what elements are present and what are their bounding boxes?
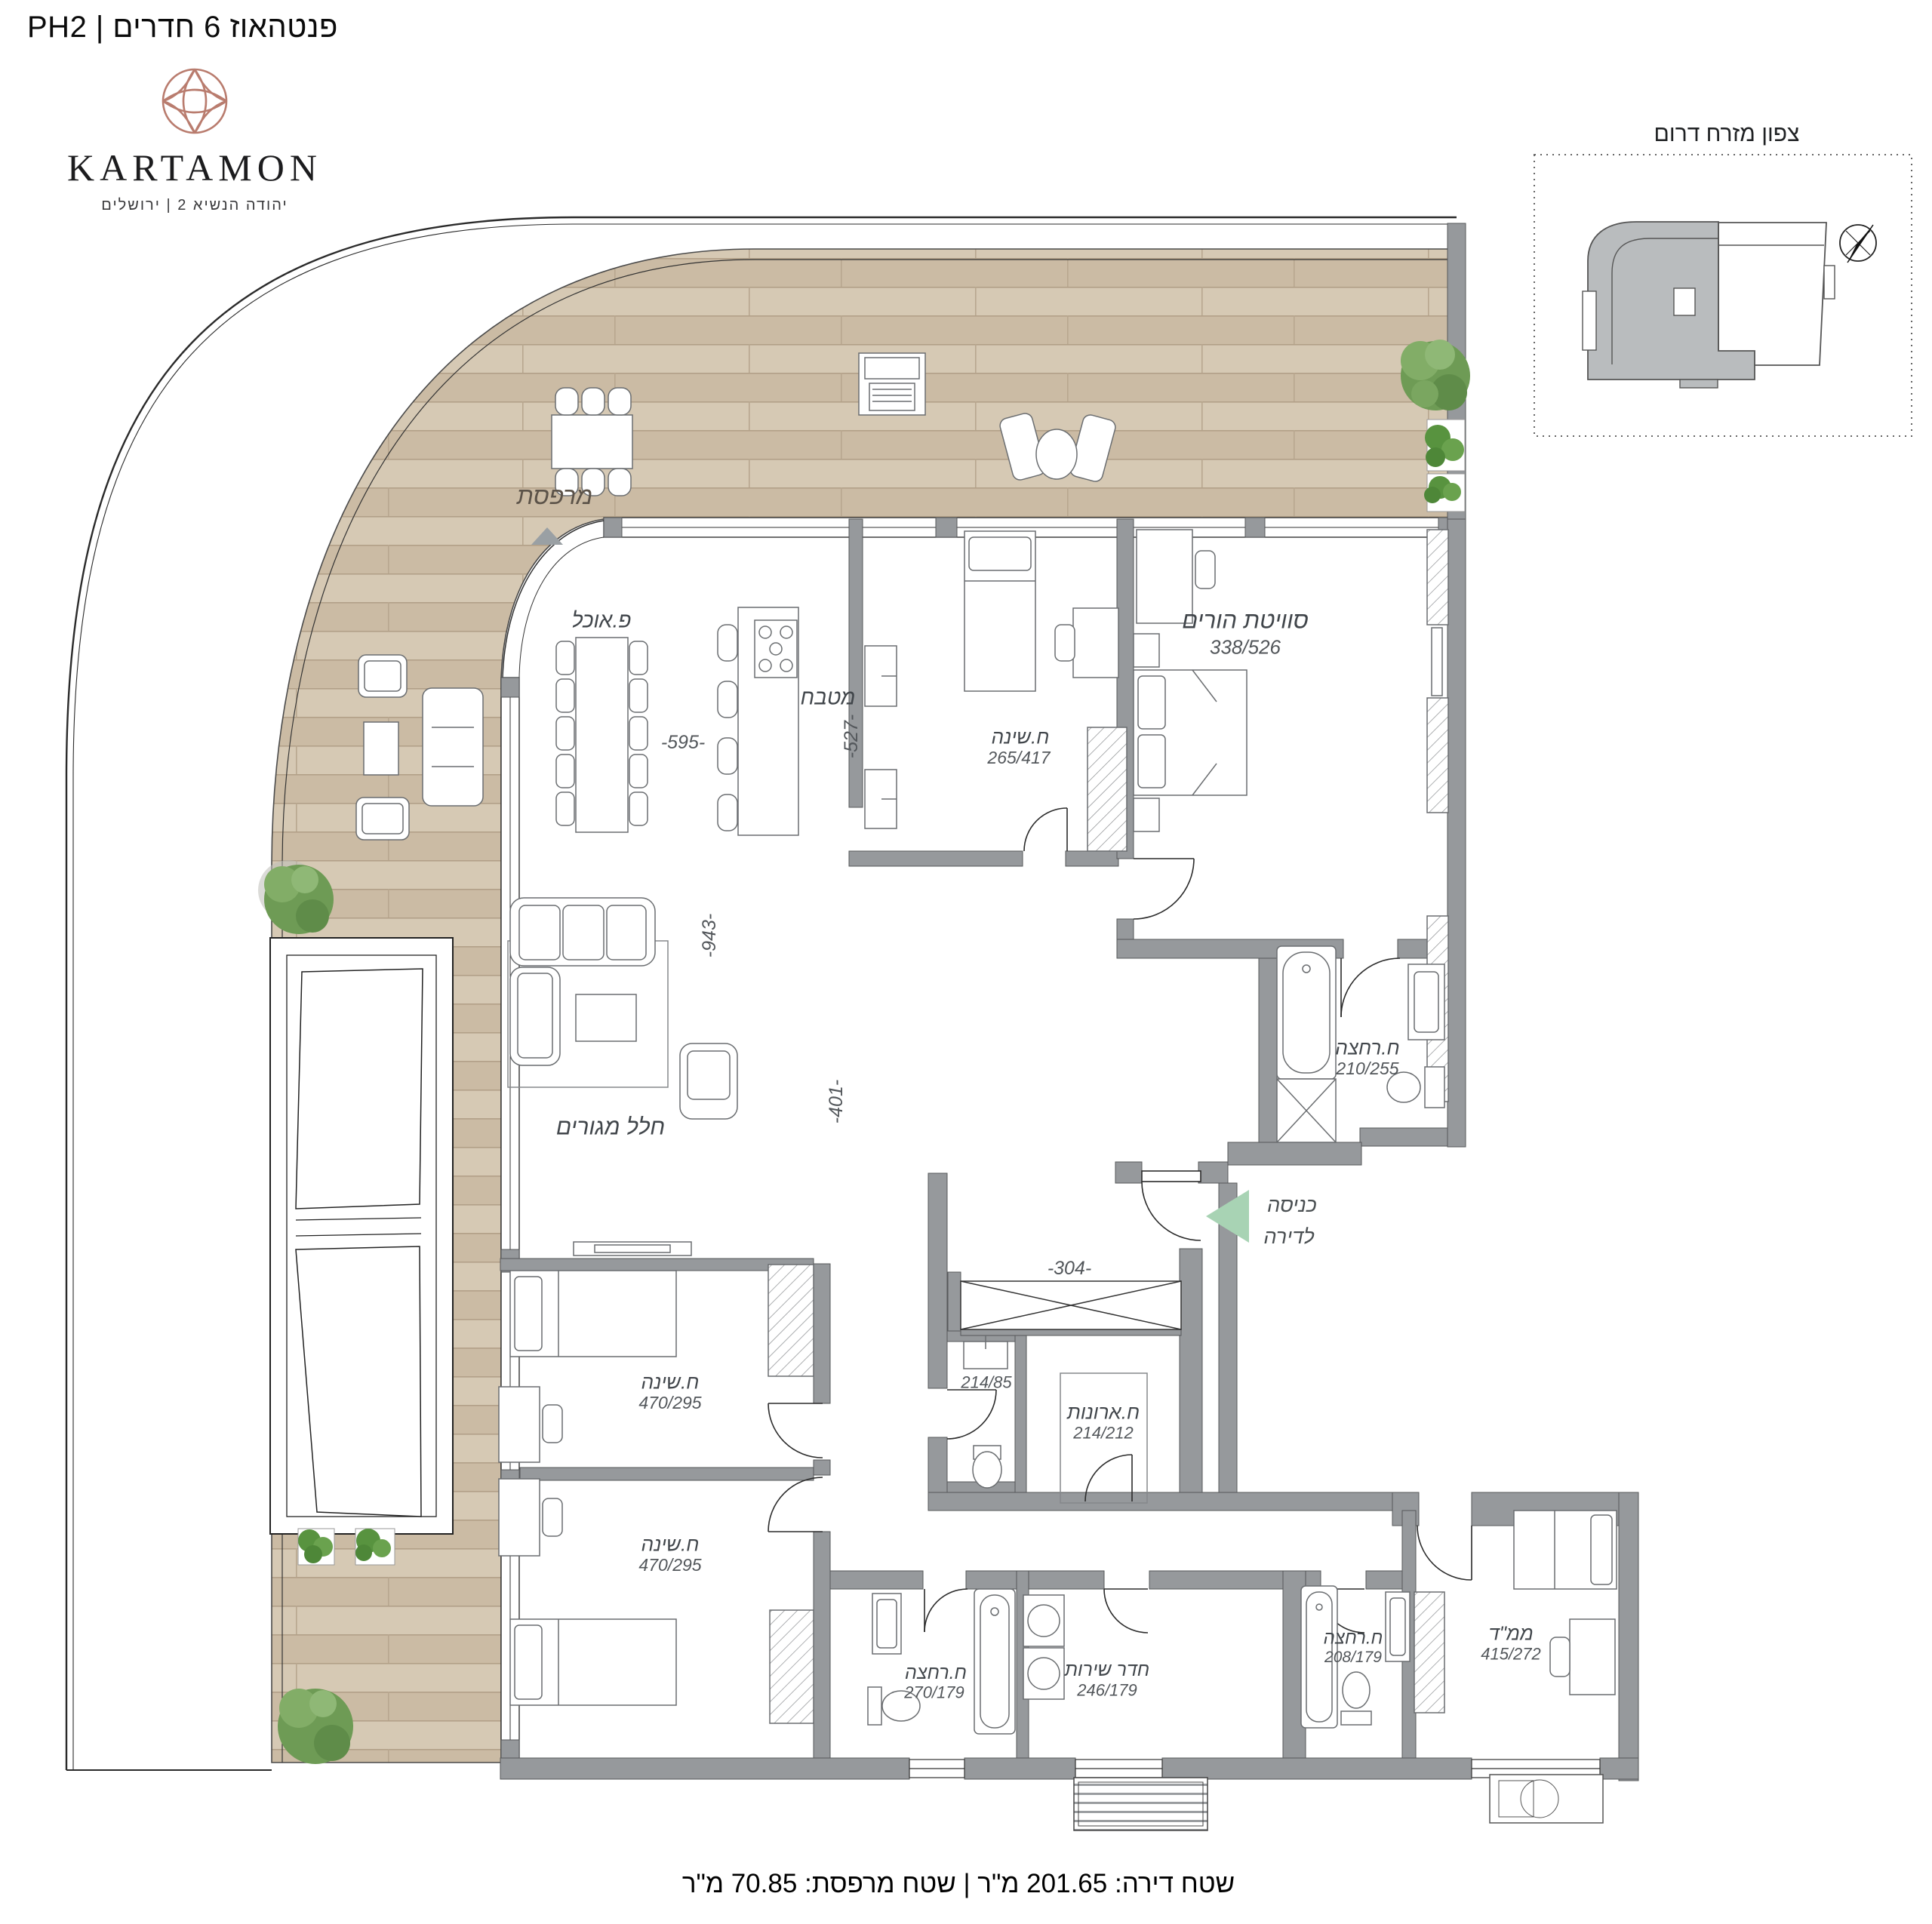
label-entry-2: לדירה — [1263, 1226, 1314, 1247]
label-bedroom2: ח.שינה — [641, 1372, 700, 1392]
label-kitchen: מטבח — [801, 686, 856, 708]
floorplan-drawing — [0, 0, 1932, 1924]
label-suite-bath-dims: 210/255 — [1336, 1059, 1398, 1077]
label-service-dims: 246/179 — [1077, 1681, 1137, 1698]
planters-right — [1424, 420, 1465, 512]
label-wc-dims: 214/85 — [961, 1373, 1011, 1391]
label-service: חדר שירות — [1065, 1660, 1149, 1680]
dim-401: -401- — [826, 1080, 846, 1123]
compass-icon — [1840, 225, 1876, 263]
label-bedroom1-dims: 265/417 — [987, 748, 1050, 767]
label-bath3: ח.רחצה — [1324, 1628, 1383, 1647]
kitchen-island — [718, 607, 798, 835]
ac-platform — [1074, 1775, 1603, 1830]
label-closet-room-dims: 214/212 — [1073, 1424, 1134, 1441]
label-bath2-dims: 270/179 — [904, 1683, 964, 1701]
floorplan-page: פנטהאוז 6 חדרים | PH2 KARTAMON יהודה הנש… — [0, 0, 1932, 1924]
bedroom1-furniture — [865, 531, 1127, 851]
dining-table — [556, 638, 648, 832]
walls — [500, 519, 1638, 1781]
shaft — [961, 1281, 1181, 1329]
label-bedroom3-dims: 470/295 — [638, 1556, 701, 1574]
label-bath3-dims: 208/179 — [1324, 1649, 1382, 1666]
label-mamad: ממ"ד — [1488, 1623, 1533, 1643]
bedroom2-furniture — [499, 1265, 814, 1462]
skylight — [270, 938, 453, 1534]
dim-304: -304- — [1048, 1259, 1091, 1278]
label-suite-dims: 338/526 — [1210, 637, 1281, 657]
label-dining: פ.אוכל — [572, 609, 632, 631]
dim-595: -595- — [661, 733, 705, 752]
label-suite-bath: ח.רחצה — [1335, 1037, 1399, 1058]
dim-943: -943- — [700, 914, 719, 957]
label-entry-1: כניסה — [1267, 1194, 1317, 1216]
label-bedroom3: ח.שינה — [641, 1534, 700, 1554]
service-fixtures — [1023, 1595, 1064, 1699]
furniture — [356, 353, 1617, 1734]
label-bath2: ח.רחצה — [905, 1663, 967, 1683]
tree-bottom-left — [278, 1689, 353, 1764]
label-balcony: מרפסת — [517, 484, 592, 509]
label-mamad-dims: 415/272 — [1481, 1645, 1541, 1662]
label-bedroom1: ח.שינה — [992, 727, 1050, 747]
mamad-furniture — [1414, 1511, 1617, 1713]
label-living: חלל מגורים — [556, 1115, 665, 1139]
label-closet-room: ח.ארונות — [1067, 1402, 1140, 1422]
wc-fixtures — [964, 1335, 1008, 1488]
locator-map — [1534, 155, 1912, 436]
area-summary: שטח דירה: 201.65 מ"ר | שטח מרפסת: 70.85 … — [682, 1869, 1235, 1899]
label-bedroom2-dims: 470/295 — [638, 1394, 701, 1412]
label-suite: סוויטת הורים — [1182, 609, 1308, 634]
bedroom3-furniture — [499, 1479, 814, 1723]
dim-527: -527- — [841, 715, 861, 758]
